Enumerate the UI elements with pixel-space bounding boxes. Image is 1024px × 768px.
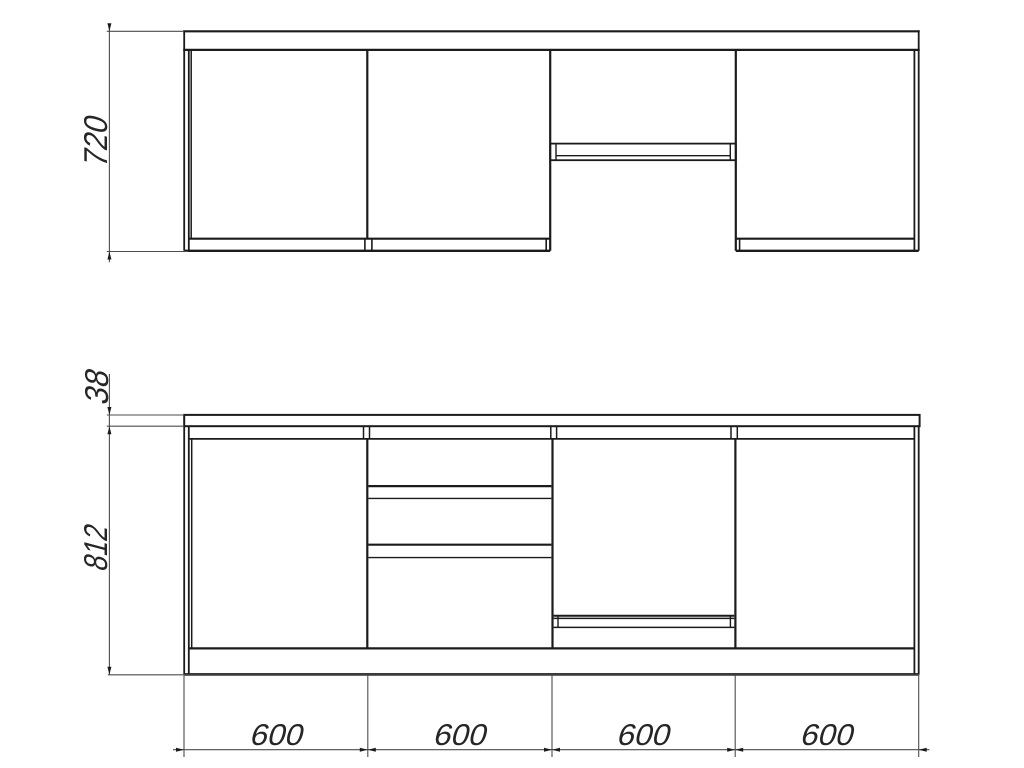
- svg-text:600: 600: [430, 718, 491, 751]
- svg-text:600: 600: [247, 718, 308, 751]
- svg-text:600: 600: [797, 718, 858, 751]
- svg-text:600: 600: [614, 718, 675, 751]
- svg-text:720: 720: [79, 111, 115, 171]
